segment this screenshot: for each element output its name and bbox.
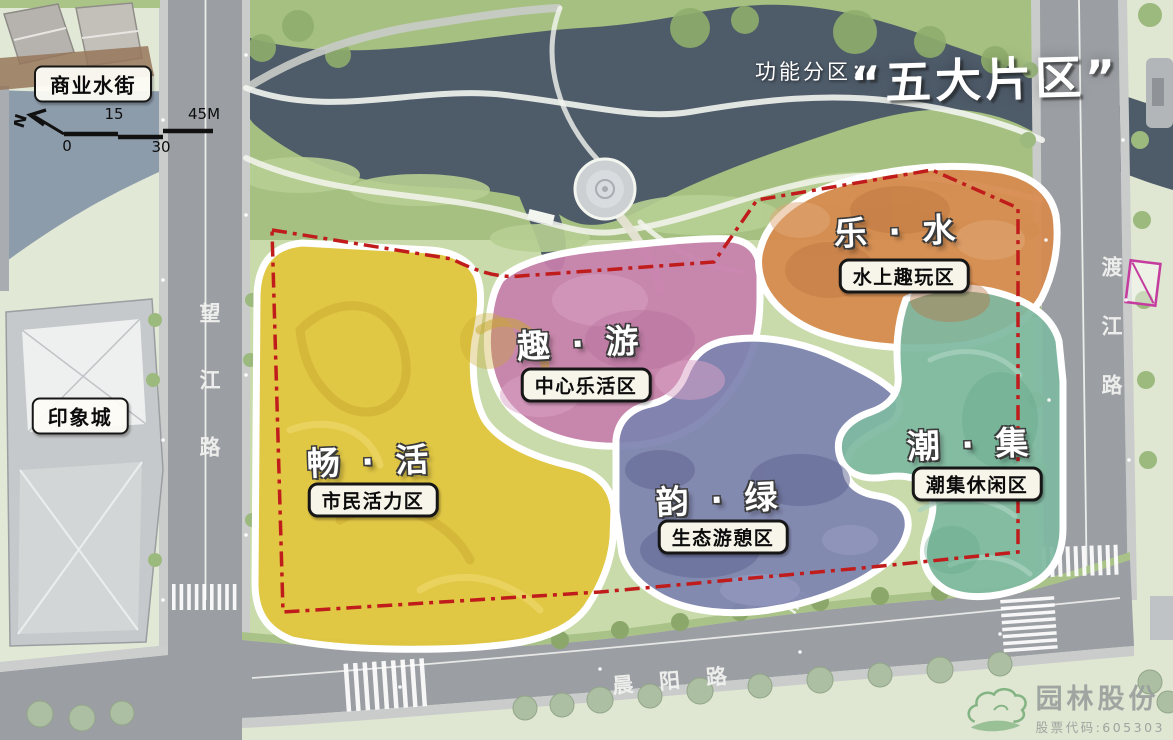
- road-name-dujiang: 渡江路: [1096, 256, 1126, 433]
- central-plaza: [575, 159, 635, 219]
- zone-qu-you-label: 中心乐活区: [521, 368, 652, 403]
- scale-tick-45m: 45M: [188, 105, 220, 123]
- scale-bar: N 0 15 30 45M: [14, 102, 226, 158]
- zone-qu-you-title: 趣 · 游: [516, 314, 645, 369]
- page-title: “五大片区”: [850, 40, 1120, 113]
- east-gate-marker: [1126, 260, 1161, 305]
- zone-yun-lv-label: 生态游憩区: [658, 520, 789, 555]
- scale-tick-30: 30: [151, 138, 170, 156]
- stock-code: 股票代码:605303: [1036, 717, 1165, 736]
- zone-le-shui-label: 水上趣玩区: [839, 259, 970, 294]
- zone-le-shui-title: 乐 · 水: [833, 203, 961, 255]
- garden-cloud-icon: [965, 686, 1027, 736]
- master-plan-canvas: 功能分区： “五大片区” 商业水街 印象城 N 0 15 30 45M 望江路 …: [0, 0, 1173, 740]
- zone-chang-huo-title: 畅 · 活: [306, 433, 434, 485]
- company-name: 园林股份: [1036, 686, 1165, 714]
- impression-city-building: [6, 299, 163, 646]
- road-name-wangjiang: 望江路: [194, 302, 224, 503]
- zone-yun-lv-title: 韵 · 绿: [655, 470, 784, 525]
- impression-city-label: 印象城: [32, 398, 129, 435]
- company-logo: 园林股份 股票代码:605303: [965, 686, 1165, 736]
- scale-tick-15: 15: [104, 105, 123, 123]
- scale-tick-0: 0: [62, 137, 72, 155]
- zone-chang-huo-label: 市民活力区: [308, 483, 439, 518]
- commercial-street-label: 商业水街: [34, 66, 152, 103]
- zone-chao-ji-label: 潮集休闲区: [912, 467, 1043, 502]
- zone-chao-ji-title: 潮 · 集: [906, 416, 1034, 468]
